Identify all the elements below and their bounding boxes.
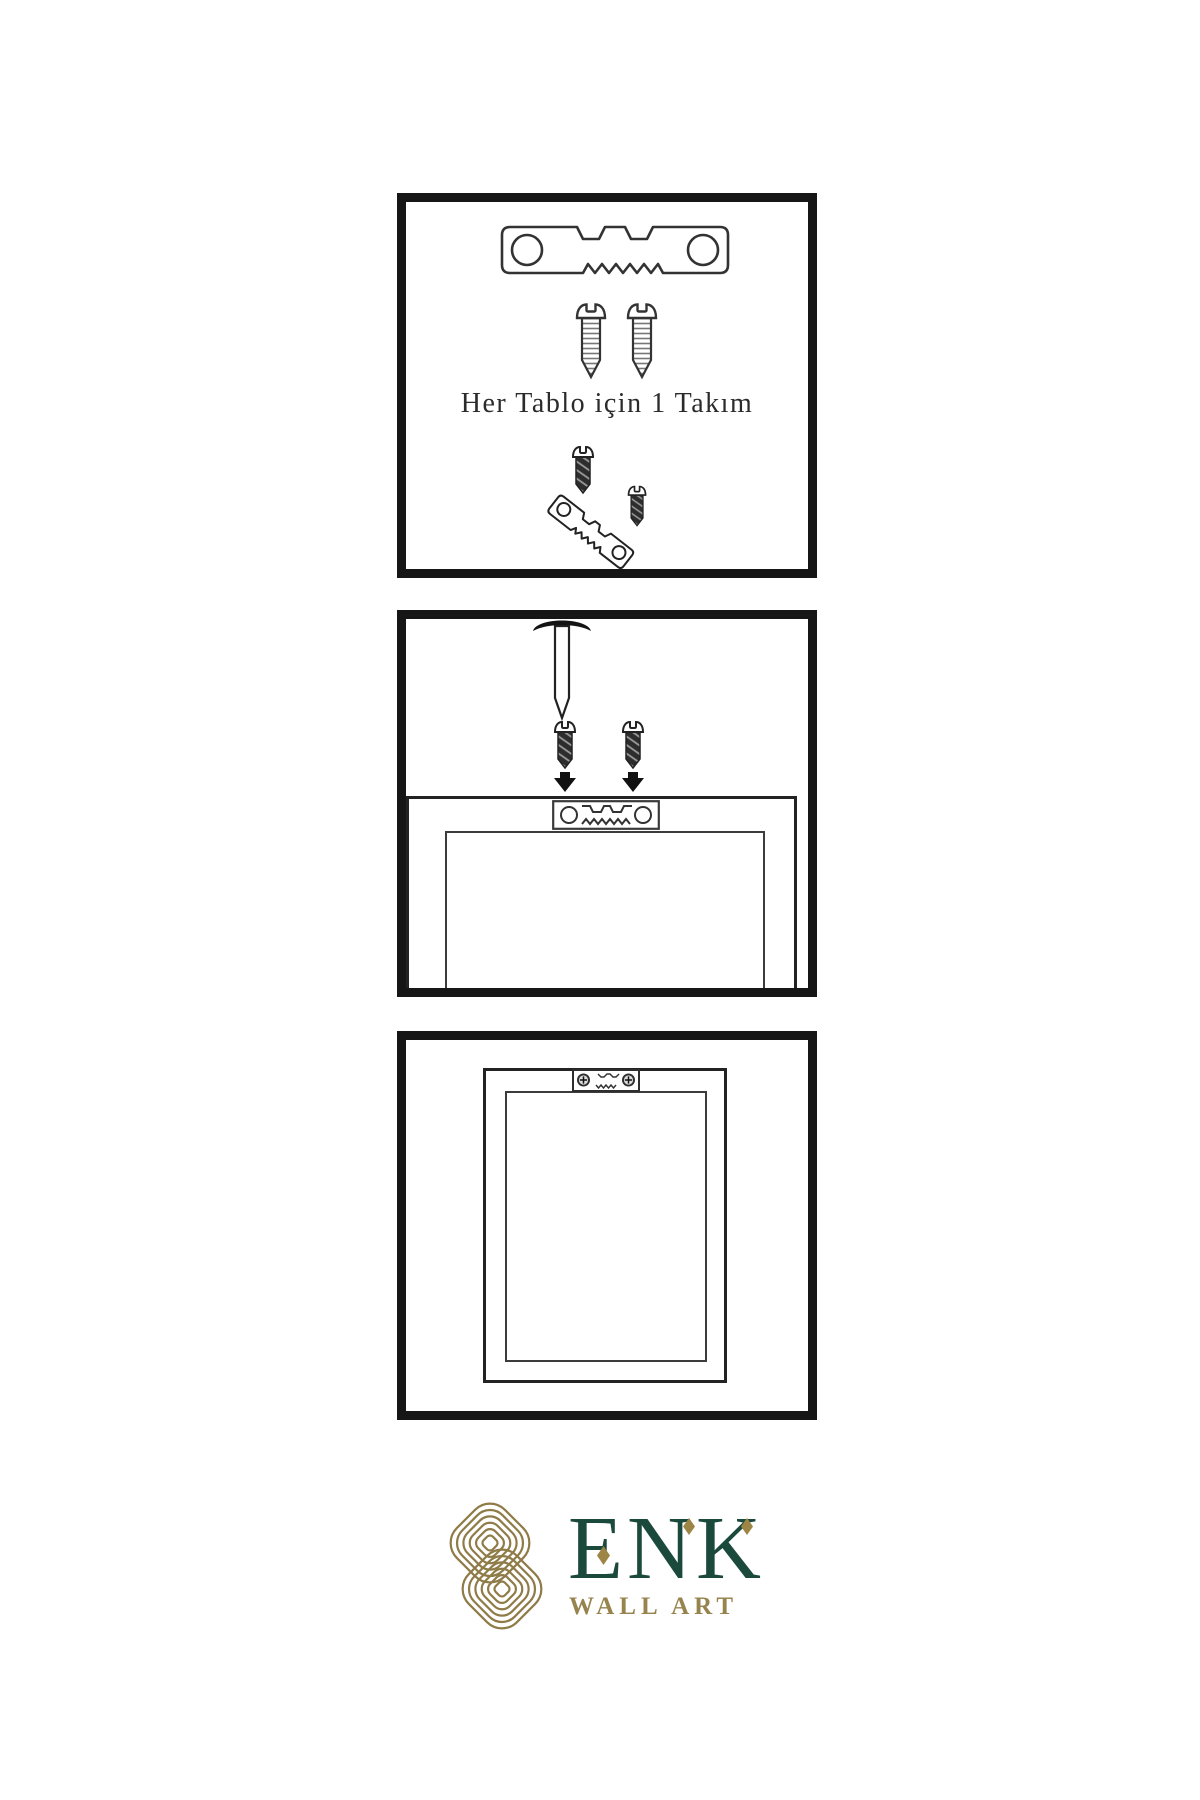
hung-frame-inner — [505, 1091, 707, 1362]
brand-name: ENK — [568, 1504, 765, 1594]
kit-label: Her Tablo için 1 Takım — [406, 388, 808, 420]
brand-subtitle: WALL ART — [569, 1594, 738, 1619]
screw-into-hanger-icon — [534, 444, 674, 578]
hanger-plate-icon — [552, 800, 660, 830]
nail-in-wall-icon — [530, 612, 594, 724]
screw-down-arrow-icon — [617, 719, 649, 797]
frame-back-inner — [445, 831, 765, 988]
panel-hardware-kit: Her Tablo için 1 Takım — [397, 193, 817, 578]
instruction-sheet: Her Tablo için 1 Takım — [0, 0, 1200, 1800]
mounted-screw-head-icon — [577, 1074, 590, 1087]
panel-wall-mounting — [397, 610, 817, 997]
mounted-screw-head-icon — [622, 1074, 635, 1087]
panel-hung-frame — [397, 1031, 817, 1420]
sawtooth-hanger-icon — [495, 220, 735, 280]
screw-icon — [573, 301, 609, 381]
screw-down-arrow-icon — [549, 719, 581, 797]
enk-knot-icon — [438, 1493, 554, 1639]
mounted-hanger-icon — [572, 1069, 640, 1092]
screw-icon — [624, 301, 660, 381]
